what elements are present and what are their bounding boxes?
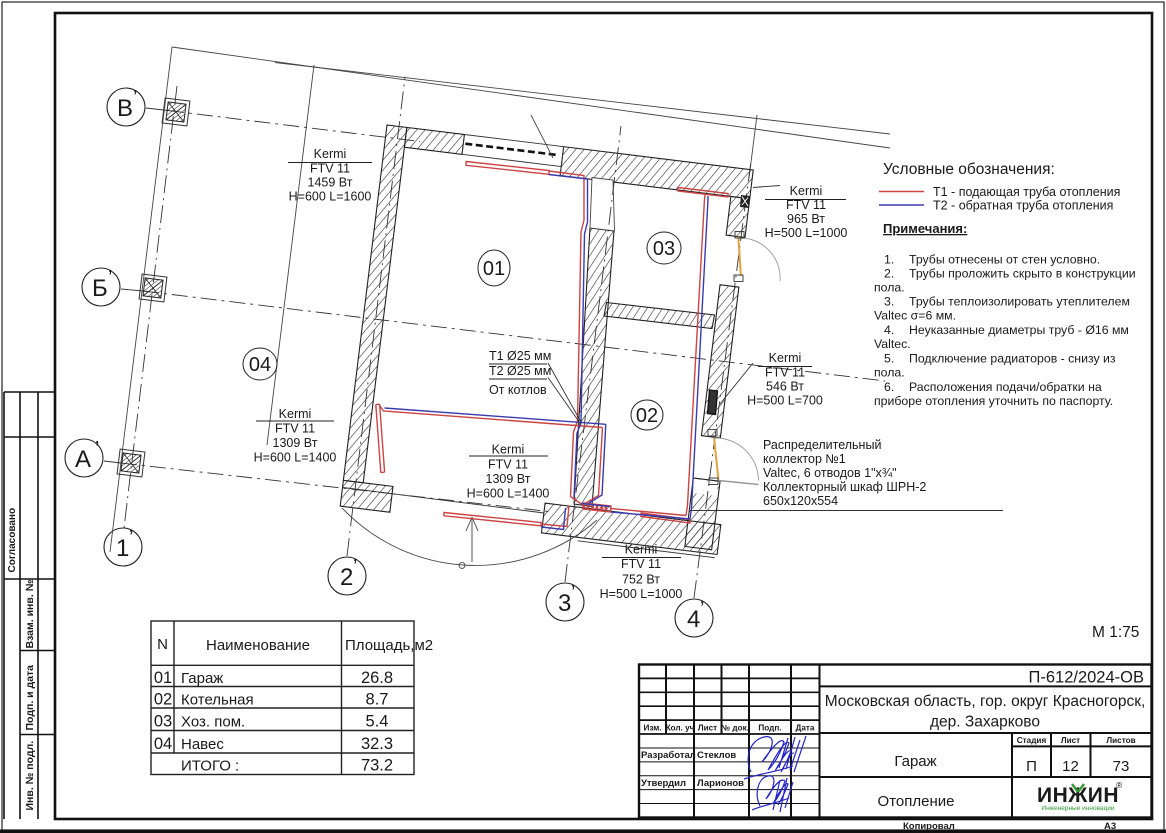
svg-text:04: 04 (249, 354, 271, 376)
svg-text:5.4: 5.4 (366, 713, 389, 731)
svg-text:Kermi: Kermi (625, 543, 658, 557)
svg-text:Кол. уч: Кол. уч (666, 724, 695, 733)
svg-text:Отопление: Отопление (878, 793, 955, 810)
svg-text:Утвердил: Утвердил (641, 778, 686, 789)
svg-text:Kermi: Kermi (314, 147, 347, 161)
svg-text:’: ’ (353, 556, 357, 578)
svg-text:Коллекторный шкаф ШРН-2: Коллекторный шкаф ШРН-2 (763, 480, 926, 494)
svg-text:1309 Вт: 1309 Вт (486, 472, 531, 486)
svg-text:дер. Захарково: дер. Захарково (930, 714, 1040, 731)
svg-text:1.: 1. (884, 253, 894, 267)
svg-text:Лист: Лист (698, 724, 717, 733)
svg-text:Трубы теплоизолировать утеплит: Трубы теплоизолировать утеплителем (909, 295, 1130, 309)
svg-text:1: 1 (116, 535, 129, 562)
svg-text:73.2: 73.2 (361, 757, 393, 775)
svg-text:FTV 11: FTV 11 (765, 366, 805, 380)
svg-text:01: 01 (483, 258, 505, 280)
svg-text:Т2 - обратная труба отопления: Т2 - обратная труба отопления (933, 199, 1113, 213)
svg-text:пола.: пола. (874, 281, 905, 295)
svg-text:965 Вт: 965 Вт (787, 212, 825, 226)
svg-text:4: 4 (687, 606, 700, 633)
svg-text:Изм.: Изм. (643, 724, 661, 733)
svg-text:H=500 L=1000: H=500 L=1000 (600, 587, 683, 601)
svg-text:Kermi: Kermi (492, 443, 525, 457)
svg-text:Ларионов: Ларионов (697, 778, 744, 789)
svg-text:приборе отопления уточнить по: приборе отопления уточнить по паспорту. (874, 394, 1113, 408)
svg-text:Б: Б (92, 275, 108, 302)
svg-text:FTV 11: FTV 11 (488, 458, 528, 472)
svg-text:М 1:75: М 1:75 (1092, 624, 1139, 641)
svg-text:Стадия: Стадия (1017, 736, 1047, 745)
svg-text:Копировал: Копировал (903, 821, 955, 832)
svg-text:Наименование: Наименование (206, 637, 310, 654)
svg-text:02: 02 (154, 691, 172, 709)
svg-text:Трубы отнесены от стен условно: Трубы отнесены от стен условно. (909, 253, 1100, 267)
svg-text:1459 Вт: 1459 Вт (308, 176, 353, 190)
svg-text:Valtec, 6 отводов 1"х¾": Valtec, 6 отводов 1"х¾" (763, 466, 897, 480)
svg-text:коллектор №1: коллектор №1 (763, 452, 846, 466)
svg-text:От котлов: От котлов (489, 383, 547, 397)
svg-text:ИТОГО :: ИТОГО : (181, 758, 239, 775)
svg-text:Подключение радиаторов - снизу: Подключение радиаторов - снизу из (909, 352, 1116, 366)
svg-text:’: ’ (95, 438, 99, 460)
svg-text:’: ’ (129, 527, 133, 549)
svg-text:8.7: 8.7 (366, 691, 389, 709)
svg-text:пола.: пола. (874, 366, 905, 380)
svg-text:Стеклов: Стеклов (697, 750, 736, 761)
svg-text:FTV 11: FTV 11 (310, 162, 350, 176)
svg-text:№ док.: № док. (721, 724, 749, 733)
svg-text:3.: 3. (884, 295, 894, 309)
svg-text:’: ’ (571, 582, 575, 604)
svg-text:Подп.: Подп. (758, 724, 781, 733)
svg-text:Т1 Ø25 мм: Т1 Ø25 мм (489, 349, 551, 363)
svg-text:Инженерные инновации: Инженерные инновации (1041, 805, 1115, 812)
svg-text:4.: 4. (884, 323, 894, 337)
svg-text:5.: 5. (884, 352, 894, 366)
svg-text:01: 01 (154, 669, 172, 687)
svg-text:2: 2 (340, 564, 353, 591)
svg-text:FTV 11: FTV 11 (786, 198, 826, 212)
svg-text:’: ’ (133, 87, 137, 109)
svg-text:Kermi: Kermi (790, 184, 823, 198)
svg-text:3: 3 (558, 590, 571, 617)
svg-text:Листов: Листов (1106, 736, 1135, 745)
svg-text:Valtec.: Valtec. (874, 337, 911, 351)
svg-text:’: ’ (108, 267, 112, 289)
svg-text:26.8: 26.8 (361, 669, 393, 687)
svg-text:73: 73 (1113, 758, 1130, 775)
svg-text:Расположения подачи/обратки на: Расположения подачи/обратки на (909, 380, 1102, 394)
svg-text:Kermi: Kermi (279, 407, 312, 421)
svg-text:Хоз. пом.: Хоз. пом. (181, 714, 245, 731)
svg-text:Подп. и дата: Подп. и дата (24, 665, 36, 731)
svg-text:Навес: Навес (181, 736, 224, 753)
svg-text:Условные обозначения:: Условные обозначения: (883, 161, 1055, 178)
svg-text:Т1 - подающая труба отопления: Т1 - подающая труба отопления (933, 185, 1120, 199)
svg-text:Трубы проложить скрыто в конст: Трубы проложить скрыто в конструкции (909, 267, 1136, 281)
svg-text:Лист: Лист (1061, 736, 1080, 745)
svg-text:03: 03 (154, 713, 172, 731)
svg-text:Valtec σ=6 мм.: Valtec σ=6 мм. (874, 309, 956, 323)
svg-text:П-612/2024-ОВ: П-612/2024-ОВ (1028, 669, 1144, 687)
svg-text:П: П (1026, 758, 1037, 775)
svg-text:H=600 L=1400: H=600 L=1400 (254, 451, 337, 465)
svg-text:А: А (75, 446, 91, 473)
svg-text:Площадь,м2: Площадь,м2 (345, 637, 433, 654)
svg-text:752 Вт: 752 Вт (622, 573, 660, 587)
svg-text:1309 Вт: 1309 Вт (273, 436, 318, 450)
svg-text:650х120х554: 650х120х554 (763, 494, 838, 508)
svg-text:H=500 L=700: H=500 L=700 (747, 394, 823, 408)
svg-text:H=600 L=1400: H=600 L=1400 (467, 487, 550, 501)
svg-text:Гараж: Гараж (894, 753, 936, 770)
svg-text:Московская область, гор. округ: Московская область, гор. округ Красногор… (825, 693, 1146, 710)
svg-text:Примечания:: Примечания: (883, 221, 967, 236)
svg-text:Распределительный: Распределительный (763, 438, 881, 452)
svg-text:2.: 2. (884, 267, 894, 281)
svg-text:FTV 11: FTV 11 (621, 557, 661, 571)
svg-text:H=500 L=1000: H=500 L=1000 (765, 226, 848, 240)
svg-text:А3: А3 (1104, 821, 1116, 832)
svg-text:Неуказанные диаметры труб - Ø1: Неуказанные диаметры труб - Ø16 мм (909, 323, 1129, 337)
svg-text:Котельная: Котельная (181, 692, 254, 709)
svg-text:’: ’ (700, 598, 704, 620)
svg-text:Согласовано: Согласовано (7, 508, 18, 573)
svg-text:Инв. № подл.: Инв. № подл. (24, 741, 36, 811)
svg-text:6.: 6. (884, 380, 894, 394)
svg-text:04: 04 (154, 735, 172, 753)
svg-text:®: ® (1116, 780, 1123, 790)
svg-text:N: N (157, 636, 168, 653)
svg-text:546 Вт: 546 Вт (766, 380, 804, 394)
svg-text:В: В (117, 95, 133, 122)
svg-text:Взам. инв. №: Взам. инв. № (24, 579, 36, 648)
svg-text:03: 03 (653, 238, 675, 260)
svg-text:Гараж: Гараж (181, 670, 223, 687)
svg-text:12: 12 (1062, 758, 1079, 775)
svg-text:Разработал: Разработал (641, 750, 696, 761)
svg-text:H=600 L=1600: H=600 L=1600 (289, 190, 372, 204)
svg-text:02: 02 (636, 405, 658, 427)
svg-text:FTV 11: FTV 11 (275, 422, 315, 436)
svg-text:ИНЖИН: ИНЖИН (1037, 784, 1119, 807)
svg-text:32.3: 32.3 (361, 735, 393, 753)
svg-text:Т2 Ø25 мм: Т2 Ø25 мм (489, 364, 551, 378)
svg-text:Дата: Дата (796, 724, 815, 733)
svg-text:Kermi: Kermi (769, 351, 802, 365)
